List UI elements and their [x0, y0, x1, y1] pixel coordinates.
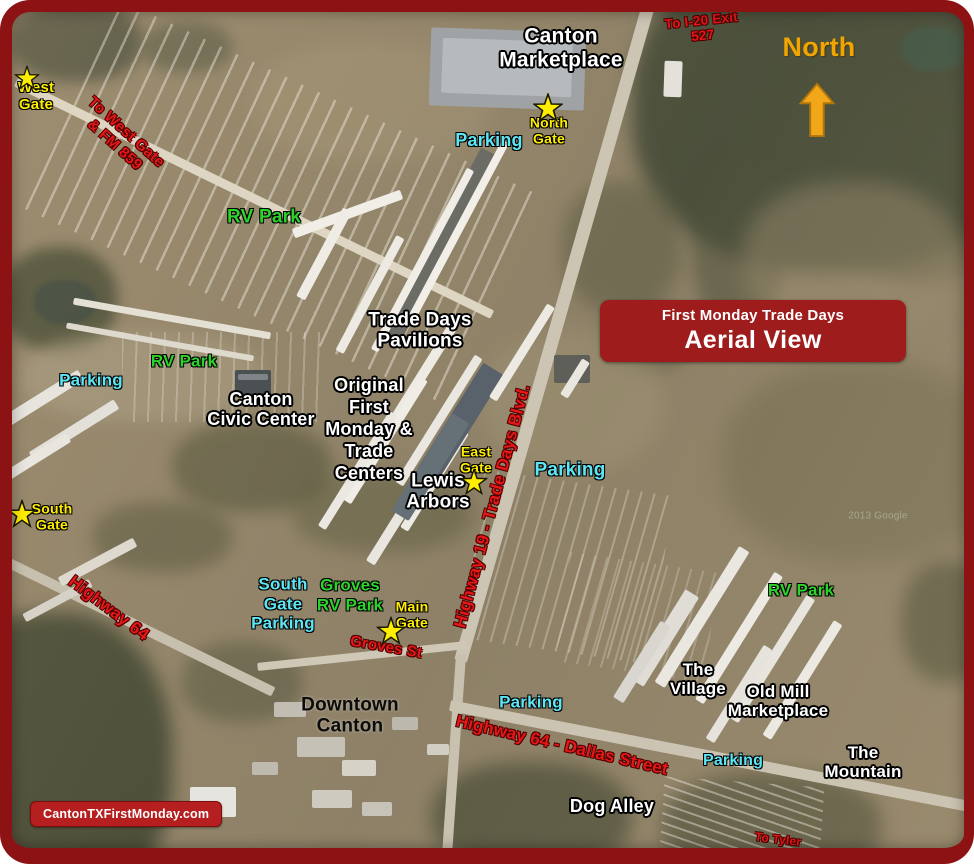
building-shape	[427, 744, 449, 755]
south-gate-parking-label: South Gate Parking	[251, 575, 315, 634]
building-shape	[297, 737, 345, 757]
north-gate-star-icon	[533, 93, 563, 123]
main-gate-star-icon	[377, 617, 406, 646]
old-mill-marketplace-label: Old Mill Marketplace	[728, 682, 828, 720]
building-shape	[342, 760, 376, 776]
the-mountain-label: The Mountain	[824, 743, 901, 781]
canton-civic-center-label: Canton Civic Center	[207, 389, 314, 429]
building-shape	[663, 61, 682, 98]
site-url-badge[interactable]: CantonTXFirstMonday.com	[30, 801, 222, 827]
parking-west-label: Parking	[59, 370, 123, 389]
title-line2: Aerial View	[684, 326, 821, 355]
building-shape	[312, 790, 352, 808]
south-gate-star-icon	[8, 500, 37, 529]
west-gate-star-icon	[15, 66, 40, 91]
trade-days-pavilions-label: Trade Days Pavilions	[368, 310, 471, 353]
imagery-watermark: 2013 Google	[848, 510, 907, 521]
compass-north-label: North	[783, 32, 856, 62]
parking-east-label: Parking	[534, 459, 605, 480]
east-gate-star-icon	[461, 469, 488, 496]
building-shape	[252, 762, 278, 775]
title-line1: First Monday Trade Days	[662, 307, 844, 326]
original-first-monday-label: Original First Monday & Trade Centers	[325, 375, 413, 485]
canton-marketplace-label: Canton Marketplace	[499, 24, 623, 71]
building-shape	[362, 802, 392, 816]
groves-rv-park-label: Groves RV Park	[317, 575, 383, 614]
parking-old-mill-label: Parking	[703, 752, 763, 770]
north-arrow-icon	[798, 82, 836, 138]
downtown-canton-label: Downtown Canton	[301, 695, 399, 738]
dog-alley-label: Dog Alley	[570, 796, 654, 816]
parking-downtown-label: Parking	[499, 692, 563, 711]
aerial-map-page: North First Monday Trade Days Aerial Vie…	[0, 0, 974, 864]
rv-park-nw-label: RV Park	[227, 206, 301, 227]
rv-park-east-label: RV Park	[768, 580, 834, 599]
south-gate-label: South Gate	[32, 501, 73, 532]
title-box: First Monday Trade Days Aerial View	[600, 300, 906, 362]
parking-north-label: Parking	[455, 130, 522, 150]
building-shape	[238, 374, 268, 380]
rv-park-west-label: RV Park	[151, 351, 217, 370]
the-village-label: The Village	[670, 660, 726, 698]
